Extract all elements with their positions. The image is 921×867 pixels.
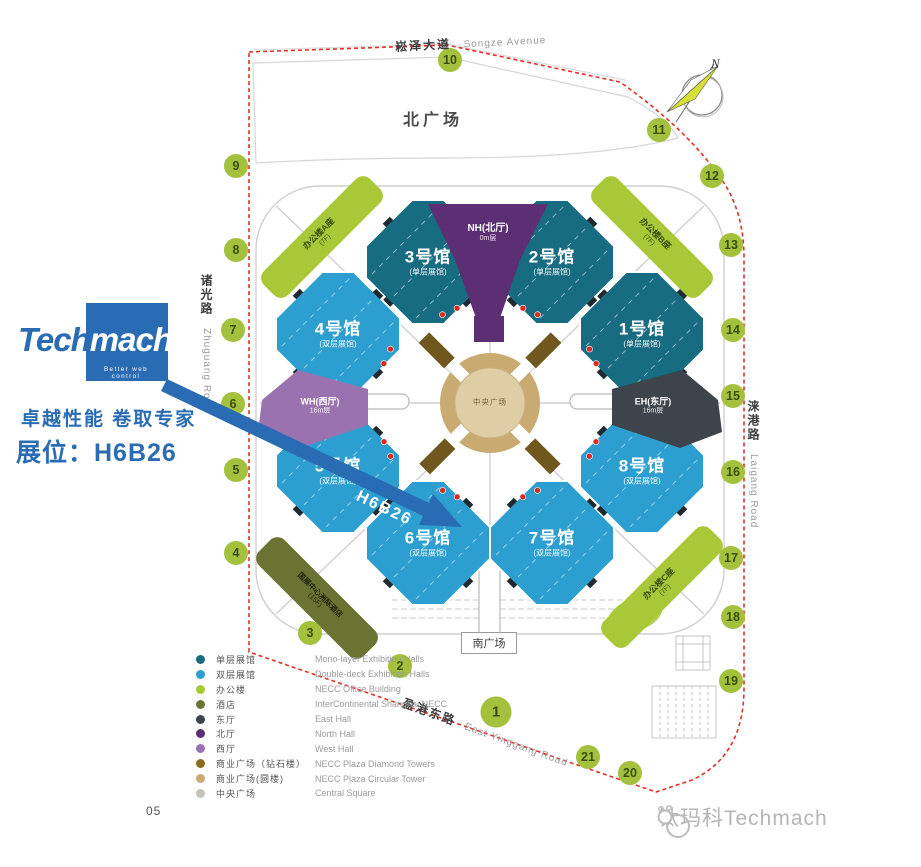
legend-label-zh: 西厅 [216, 742, 315, 755]
legend-label-en: East Hall [315, 714, 351, 724]
legend-item-9: 中央广场Central Square [196, 786, 447, 801]
gate-14: 14 [721, 318, 745, 342]
road-label-laigang: 涞港路 Laigang Road [744, 400, 762, 529]
legend-item-4: 东厅East Hall [196, 712, 447, 727]
legend-label-en: InterContinental Shanghai NECC [315, 699, 447, 709]
techmach-watermark-icon [652, 802, 694, 842]
gate-4: 4 [224, 541, 248, 565]
legend-item-8: 商业广场(圆楼)NECC Plaza Circular Tower [196, 771, 447, 786]
legend-label-zh: 酒店 [216, 698, 315, 711]
office-building-b: 办公楼B座 (7F) [587, 172, 717, 302]
hall-name: 7号馆 [529, 529, 575, 549]
legend-label-zh: 东厅 [216, 713, 315, 726]
gate-21: 21 [576, 745, 600, 769]
hotel-label: 国展中心洲际酒店 [296, 571, 345, 620]
gate-18: 18 [721, 605, 745, 629]
gate-19: 19 [719, 669, 743, 693]
legend-color-dot [196, 759, 205, 768]
gate-13: 13 [719, 233, 743, 257]
hall-name: 2号馆 [529, 248, 575, 268]
legend-item-5: 北厅North Hall [196, 726, 447, 741]
hall-sub: (单层展馆) [529, 267, 575, 276]
hall-sub: (双层展馆) [405, 548, 451, 557]
hall-sub: (双层展馆) [315, 339, 361, 348]
gate-11: 11 [647, 118, 671, 142]
gate-17: 17 [719, 546, 743, 570]
watermark: 钛玛科Techmach [652, 802, 828, 832]
necc-map-page: N 办公楼A座 (7F) 办公楼B座 (7F) 办公楼C座 (7F) 国展中心洲… [0, 0, 921, 867]
gate-5: 5 [224, 458, 248, 482]
legend-color-dot [196, 729, 205, 738]
legend-label-zh: 商业广场(圆楼) [216, 772, 315, 785]
legend-color-dot [196, 744, 205, 753]
legend-color-dot [196, 700, 205, 709]
office-a-label: 办公楼A座 [302, 217, 337, 252]
page-number: 05 [146, 804, 161, 818]
gate-15: 15 [721, 384, 745, 408]
legend-color-dot [196, 655, 205, 664]
hall-label-4号馆: 4号馆(双层展馆) [315, 320, 361, 349]
hall-sub: (双层展馆) [315, 476, 361, 485]
hall-label-5号馆: 5号馆(双层展馆) [315, 457, 361, 486]
hall-sub: (单层展馆) [405, 267, 451, 276]
road-label-songze: 崧泽大道 Songze Avenue [395, 30, 547, 56]
central-square-label: 中央广场 [473, 397, 507, 408]
office-b-label: 办公楼B座 [637, 217, 672, 252]
legend-label-en: Mono-layer Exhibition Halls [315, 654, 424, 664]
map-labels-layer: 办公楼A座 (7F) 办公楼B座 (7F) 办公楼C座 (7F) 国展中心洲际酒… [0, 0, 921, 867]
gate-16: 16 [721, 460, 745, 484]
legend-label-en: West Hall [315, 744, 353, 754]
legend-item-7: 商业广场（钻石楼）NECC Plaza Diamond Towers [196, 756, 447, 771]
hall-name: 5号馆 [315, 457, 361, 477]
hall-sub: (单层展馆) [619, 339, 665, 348]
hall-sub: (双层展馆) [529, 548, 575, 557]
east-hall-label: EH(东厅) 16m层 [635, 396, 672, 415]
legend-item-1: 双层展馆Double-deck Exhibition Halls [196, 667, 447, 682]
hall-label-7号馆: 7号馆(双层展馆) [529, 529, 575, 558]
legend-color-dot [196, 670, 205, 679]
hall-name: 8号馆 [619, 457, 665, 477]
legend-label-zh: 北厅 [216, 727, 315, 740]
hall-label-6号馆: 6号馆(双层展馆) [405, 529, 451, 558]
gate-20: 20 [618, 761, 642, 785]
gate-3: 3 [298, 621, 322, 645]
hall-label-1号馆: 1号馆(单层展馆) [619, 320, 665, 349]
north-plaza-label: 北广场 [403, 106, 463, 130]
legend-color-dot [196, 685, 205, 694]
legend-label-en: NECC Plaza Circular Tower [315, 774, 425, 784]
legend-label-zh: 办公楼 [216, 683, 315, 696]
legend-label-zh: 双层展馆 [216, 668, 315, 681]
legend-label-en: NECC Office Building [315, 684, 401, 694]
hotel-strip: 国展中心洲际酒店 (15F) [252, 533, 382, 663]
south-plaza-label: 南广场 [461, 632, 517, 654]
office-building-a: 办公楼A座 (7F) [257, 172, 387, 302]
legend-item-0: 单层展馆Mono-layer Exhibition Halls [196, 652, 447, 667]
gate-12: 12 [700, 164, 724, 188]
legend-label-zh: 商业广场（钻石楼） [216, 757, 315, 770]
legend-label-zh: 中央广场 [216, 787, 315, 800]
legend-label-en: NECC Plaza Diamond Towers [315, 759, 435, 769]
legend: 单层展馆Mono-layer Exhibition Halls双层展馆Doubl… [196, 652, 447, 801]
hall-name: 3号馆 [405, 248, 451, 268]
legend-item-2: 办公楼NECC Office Building [196, 682, 447, 697]
hall-label-3号馆: 3号馆(单层展馆) [405, 248, 451, 277]
hall-label-8号馆: 8号馆(双层展馆) [619, 457, 665, 486]
hall-sub: (双层展馆) [619, 476, 665, 485]
legend-color-dot [196, 789, 205, 798]
legend-label-en: Central Square [315, 788, 376, 798]
legend-label-en: North Hall [315, 729, 355, 739]
legend-color-dot [196, 715, 205, 724]
office-building-c: 办公楼C座 (7F) [597, 522, 727, 652]
hall-name: 6号馆 [405, 529, 451, 549]
legend-label-zh: 单层展馆 [216, 653, 315, 666]
legend-color-dot [196, 774, 205, 783]
hall-name: 4号馆 [315, 320, 361, 340]
legend-item-6: 西厅West Hall [196, 741, 447, 756]
hall-name: 1号馆 [619, 320, 665, 340]
gate-6: 6 [221, 392, 245, 416]
north-hall-label: NH(北厅) 0m层 [467, 223, 508, 243]
hall-label-2号馆: 2号馆(单层展馆) [529, 248, 575, 277]
legend-label-en: Double-deck Exhibition Halls [315, 669, 430, 679]
office-c-label: 办公楼C座 [642, 567, 677, 602]
legend-item-3: 酒店InterContinental Shanghai NECC [196, 697, 447, 712]
gate-9: 9 [224, 154, 248, 178]
gate-8: 8 [224, 238, 248, 262]
west-hall-label: WH(西厅) 16m层 [301, 396, 340, 415]
road-label-zhuguang: 诸光路 Zhuguang Road [197, 274, 215, 413]
gate-7: 7 [221, 318, 245, 342]
